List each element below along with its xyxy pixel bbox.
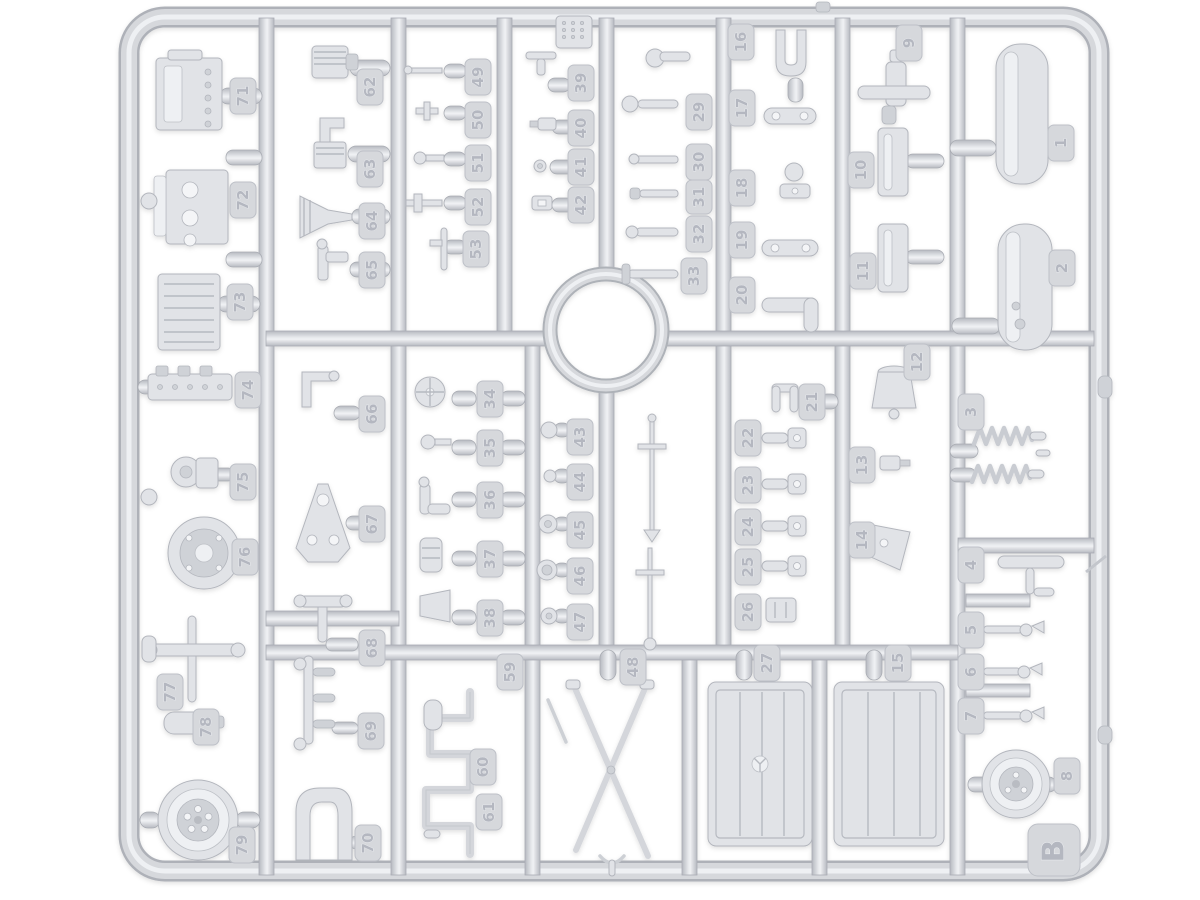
sprue-svg: 71 72 73 74 75 76 77 78 79 62 63 64 65 6…: [0, 0, 1200, 900]
sprue-frame-group: 71 72 73 74 75 76 77 78 79 62 63 64 65 6…: [129, 2, 1112, 876]
part-64-funnel: [300, 196, 352, 238]
part-tag-10: 10: [848, 152, 874, 188]
part-tag-78: 78: [193, 709, 219, 745]
svg-text:47: 47: [571, 612, 589, 633]
part-tag-21: 21: [799, 384, 825, 420]
svg-text:43: 43: [571, 427, 589, 448]
part-tag-34: 34: [477, 381, 503, 417]
part-tag-62: 62: [357, 69, 383, 105]
svg-text:5: 5: [962, 625, 980, 635]
center-ring: [550, 274, 662, 386]
svg-text:15: 15: [889, 653, 907, 674]
svg-text:16: 16: [732, 32, 750, 53]
svg-text:4: 4: [962, 560, 980, 570]
part-tag-51: 51: [465, 145, 491, 181]
part-tag-49: 49: [465, 59, 491, 95]
part-tag-13: 13: [849, 447, 875, 483]
part-70-d-seal: [296, 788, 352, 860]
part-tag-8: 8: [1054, 758, 1080, 794]
part-tag-17: 17: [729, 90, 755, 126]
parts-34-38-fittings: [415, 377, 451, 622]
svg-text:67: 67: [363, 514, 381, 535]
part-65-lever: [317, 239, 348, 280]
part-tag-20: 20: [729, 277, 755, 313]
svg-text:77: 77: [161, 682, 179, 703]
part-tag-72: 72: [230, 182, 256, 218]
svg-text:53: 53: [467, 239, 485, 260]
top-gate-stub: [816, 2, 830, 12]
svg-text:20: 20: [733, 285, 751, 306]
side-ball-stub: [141, 193, 157, 209]
part-8-road-wheel: [982, 750, 1050, 818]
svg-text:52: 52: [469, 197, 487, 218]
part-69-bracket: [294, 656, 335, 750]
part-tag-32: 32: [686, 216, 712, 252]
part-tag-24: 24: [735, 509, 761, 545]
svg-text:32: 32: [690, 224, 708, 245]
part-tag-77: 77: [157, 674, 183, 710]
part-tag-16: 16: [728, 24, 754, 60]
svg-text:36: 36: [481, 490, 499, 511]
part-tag-46: 46: [567, 558, 593, 594]
svg-text:31: 31: [690, 187, 708, 208]
part-tag-11: 11: [850, 253, 876, 289]
svg-text:37: 37: [481, 549, 499, 570]
part-tag-65: 65: [359, 252, 385, 288]
part-tag-7: 7: [958, 698, 984, 734]
svg-text:11: 11: [854, 261, 872, 282]
part-79-road-wheel: [158, 780, 238, 860]
part-tag-39: 39: [568, 65, 594, 101]
svg-text:51: 51: [469, 153, 487, 174]
part-74-cylinder-head: [148, 366, 232, 400]
svg-text:1: 1: [1052, 138, 1070, 148]
parts-thin-rods: [636, 414, 666, 650]
parts-springs: [972, 428, 1050, 482]
part-15-radiator: [834, 682, 944, 846]
part-tag-3: 3: [958, 394, 984, 430]
part-tag-63: 63: [357, 151, 383, 187]
part-tag-30: 30: [686, 144, 712, 180]
svg-text:70: 70: [359, 833, 377, 854]
part-62-piston: [312, 46, 358, 78]
svg-text:71: 71: [234, 86, 252, 107]
svg-text:68: 68: [363, 638, 381, 659]
part-tag-71: 71: [230, 78, 256, 114]
part-tag-75: 75: [230, 464, 256, 500]
part-tag-79: 79: [229, 827, 255, 863]
svg-text:27: 27: [758, 653, 776, 674]
svg-text:73: 73: [231, 292, 249, 313]
svg-text:75: 75: [234, 472, 252, 493]
svg-text:34: 34: [481, 389, 499, 410]
part-tag-53: 53: [463, 231, 489, 267]
svg-text:B: B: [1037, 840, 1072, 863]
svg-text:41: 41: [572, 157, 590, 178]
part-tag-59: 59: [497, 654, 523, 690]
part-tag-64: 64: [359, 203, 385, 239]
part-tag-44: 44: [567, 464, 593, 500]
svg-text:33: 33: [685, 266, 703, 287]
sprue-letter-tag: B: [1028, 824, 1080, 876]
part-tag-4: 4: [958, 547, 984, 583]
part-27-radiator: [708, 682, 812, 846]
part-tag-9: 9: [896, 25, 922, 61]
svg-text:14: 14: [853, 530, 871, 551]
svg-text:12: 12: [908, 352, 926, 373]
part-tag-5: 5: [958, 612, 984, 648]
part-tag-29: 29: [686, 94, 712, 130]
part-tag-31: 31: [686, 180, 712, 214]
part-tag-73: 73: [227, 284, 253, 320]
svg-text:46: 46: [571, 566, 589, 587]
part-tag-47: 47: [567, 604, 593, 640]
svg-text:10: 10: [852, 160, 870, 181]
svg-text:29: 29: [690, 102, 708, 123]
part-66-bent-rod: [302, 371, 339, 407]
part-tag-2: 2: [1049, 250, 1075, 286]
part-tag-70: 70: [355, 825, 381, 861]
parts-1-2-large-cylinders: [996, 44, 1052, 350]
part-tag-67: 67: [359, 506, 385, 542]
part-tag-12: 12: [904, 344, 930, 380]
svg-text:9: 9: [900, 38, 918, 48]
part-tag-43: 43: [567, 419, 593, 455]
svg-text:25: 25: [739, 557, 757, 578]
part-tag-61: 61: [476, 794, 502, 830]
part-tag-66: 66: [359, 396, 385, 432]
part-tag-22: 22: [735, 420, 761, 456]
svg-text:74: 74: [239, 380, 257, 401]
svg-text:78: 78: [197, 717, 215, 738]
part-tag-38: 38: [477, 600, 503, 636]
part-71-engine-block: [156, 50, 222, 130]
textured-plate: [556, 16, 592, 48]
part-tag-19: 19: [729, 222, 755, 258]
svg-text:21: 21: [803, 392, 821, 413]
part-tag-68: 68: [359, 630, 385, 666]
svg-text:76: 76: [236, 547, 254, 568]
part-tag-69: 69: [358, 713, 384, 749]
part-tag-76: 76: [232, 539, 258, 575]
svg-text:6: 6: [962, 667, 980, 677]
right-gate-stub: [1098, 376, 1112, 398]
svg-text:22: 22: [739, 428, 757, 449]
svg-text:42: 42: [572, 195, 590, 216]
parts-49-53-small-fasteners: [404, 66, 447, 270]
sprue-photo: 71 72 73 74 75 76 77 78 79 62 63 64 65 6…: [0, 0, 1200, 900]
part-tag-60: 60: [470, 749, 496, 785]
part-tag-26: 26: [735, 594, 761, 630]
svg-text:3: 3: [962, 407, 980, 417]
part-tag-6: 6: [958, 654, 984, 690]
svg-text:23: 23: [739, 475, 757, 496]
part-63-piston-rod: [314, 118, 346, 168]
part-tag-1: 1: [1048, 125, 1074, 161]
part-72-engine-block: [141, 170, 228, 246]
part-tag-14: 14: [849, 522, 875, 558]
part-tag-36: 36: [477, 482, 503, 518]
svg-text:24: 24: [739, 517, 757, 538]
part-tag-74: 74: [235, 372, 261, 408]
part-tag-18: 18: [729, 170, 755, 206]
svg-text:40: 40: [572, 118, 590, 139]
svg-text:66: 66: [363, 404, 381, 425]
right-gate-stub-2: [1098, 726, 1112, 744]
svg-text:63: 63: [361, 159, 379, 180]
part-tag-50: 50: [465, 102, 491, 138]
svg-text:13: 13: [853, 455, 871, 476]
svg-text:26: 26: [739, 602, 757, 623]
part-tag-35: 35: [477, 430, 503, 466]
part-tag-40: 40: [568, 110, 594, 146]
parts-16-20-linkages: [762, 30, 818, 332]
svg-text:2: 2: [1053, 263, 1071, 273]
svg-text:65: 65: [363, 260, 381, 281]
svg-text:49: 49: [469, 67, 487, 88]
svg-text:19: 19: [733, 230, 751, 251]
svg-text:18: 18: [733, 178, 751, 199]
svg-text:48: 48: [624, 657, 642, 678]
part-tag-37: 37: [477, 541, 503, 577]
svg-text:72: 72: [234, 190, 252, 211]
part-tag-33: 33: [681, 258, 707, 294]
part-tag-52: 52: [465, 189, 491, 225]
part-tag-15: 15: [885, 645, 911, 681]
part-tag-42: 42: [568, 187, 594, 223]
svg-text:8: 8: [1058, 771, 1076, 781]
svg-text:30: 30: [690, 152, 708, 173]
svg-text:44: 44: [571, 472, 589, 493]
svg-text:17: 17: [733, 98, 751, 119]
part-48-x-frame: [548, 680, 654, 876]
part-tag-27: 27: [754, 645, 780, 681]
svg-text:61: 61: [480, 802, 498, 823]
side-ball-stub-2: [141, 489, 157, 505]
part-67-rocker-frame: [296, 484, 350, 562]
part-75-pump: [141, 457, 218, 505]
svg-text:35: 35: [481, 438, 499, 459]
parts-29-33-pins: [622, 49, 690, 284]
svg-text:79: 79: [233, 835, 251, 856]
svg-text:64: 64: [363, 211, 381, 232]
svg-text:39: 39: [572, 73, 590, 94]
svg-text:45: 45: [571, 520, 589, 541]
part-tag-41: 41: [568, 149, 594, 185]
part-tag-45: 45: [567, 512, 593, 548]
parts-59-61-crank-links: [424, 692, 470, 854]
part-tag-25: 25: [735, 549, 761, 585]
svg-text:62: 62: [361, 77, 379, 98]
parts-21-26-clevises: [762, 384, 806, 622]
svg-text:69: 69: [362, 721, 380, 742]
svg-text:60: 60: [474, 757, 492, 778]
svg-text:7: 7: [962, 711, 980, 721]
part-tag-23: 23: [735, 467, 761, 503]
part-76-flywheel: [168, 517, 240, 589]
svg-text:50: 50: [469, 110, 487, 131]
part-73-ribbed-block: [158, 274, 220, 350]
svg-text:38: 38: [481, 608, 499, 629]
svg-text:59: 59: [501, 662, 519, 683]
part-tag-48: 48: [620, 649, 646, 685]
